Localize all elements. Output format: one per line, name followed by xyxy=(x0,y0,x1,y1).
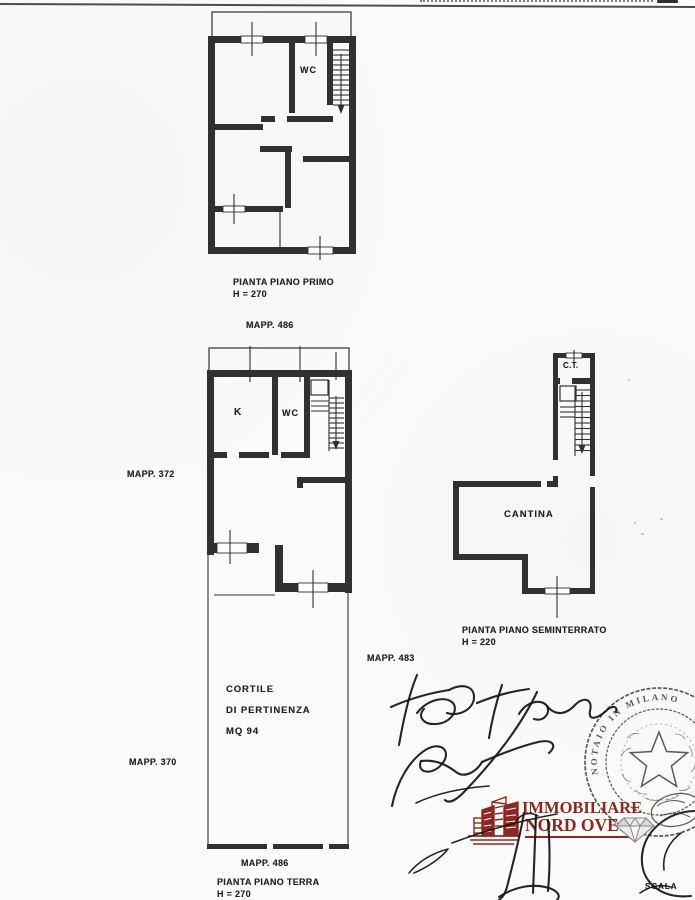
small-stamp-emblem xyxy=(648,789,695,831)
signature-upper xyxy=(391,675,616,745)
signatures-overlay xyxy=(0,0,695,900)
signature-lower xyxy=(392,692,553,806)
signature-bottom-strokes xyxy=(409,813,559,900)
scanned-floorplan-page: WC PIANTA PIANO PRIMO H = 270 MAPP. 486 … xyxy=(0,0,695,900)
